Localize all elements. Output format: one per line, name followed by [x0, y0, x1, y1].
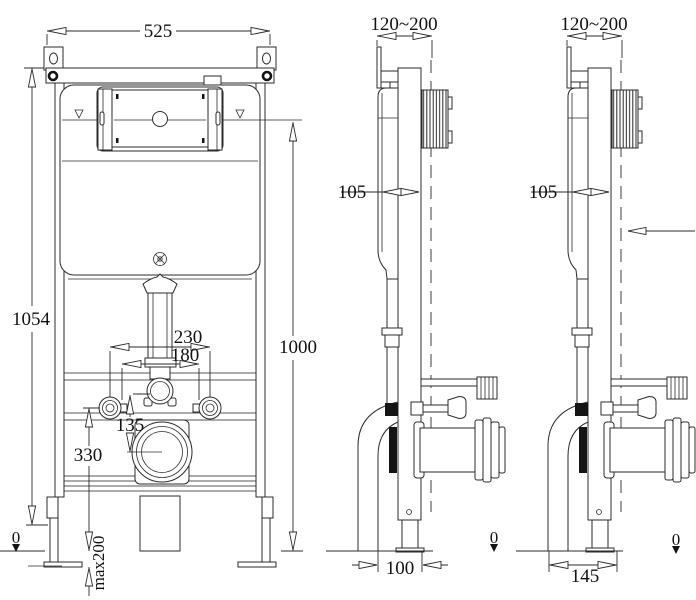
floor-zero-arrow-center: [490, 544, 498, 552]
dim-pipe-offset: 135: [116, 415, 145, 436]
leg-left: [47, 497, 58, 518]
crossbar-bottom-2: [64, 486, 256, 491]
dim-drain-offset-right: 145: [571, 566, 600, 587]
frame-top-bar: [46, 68, 274, 83]
dim-depth-range-right: 120~200: [560, 14, 627, 35]
dim-total-height: 1054: [12, 309, 51, 330]
front-view: [0, 47, 303, 567]
dim-flush-height: 1000: [279, 337, 317, 358]
dim-leg-adjust: max200: [89, 536, 108, 591]
side-view-center: [326, 47, 505, 552]
floor-zero-arrow-right: [672, 546, 680, 554]
flush-pipe-bell: [143, 274, 177, 293]
dim-spacing-inner: 180: [171, 345, 200, 366]
dim-frame-width: 525: [144, 21, 173, 42]
flush-pipe-front: [148, 293, 172, 360]
leg-right: [262, 497, 273, 518]
flush-button-hole: [153, 112, 168, 127]
technical-drawing-page: 525 1054 1000 230 180 135 330: [0, 0, 696, 600]
crossbar-middle: [64, 413, 256, 420]
dim-drain-offset-center: 100: [386, 558, 415, 579]
side-view-right: [516, 47, 695, 552]
rod-clip: [204, 76, 221, 85]
dim-tank-depth-right: 105: [529, 182, 558, 203]
fixing-bolt-right: [193, 397, 221, 419]
foot-plate-right: [238, 562, 276, 567]
frame-dimension-drawing: 525 1054 1000 230 180 135 330: [0, 0, 696, 600]
mounting-tab-left: [44, 47, 63, 70]
mounting-tab-right: [257, 47, 276, 70]
dim-outlet-height: 330: [74, 445, 103, 466]
dim-tank-depth-center: 105: [338, 182, 367, 203]
dim-depth-range-center: 120~200: [370, 14, 437, 35]
drain-duct: [140, 496, 180, 551]
